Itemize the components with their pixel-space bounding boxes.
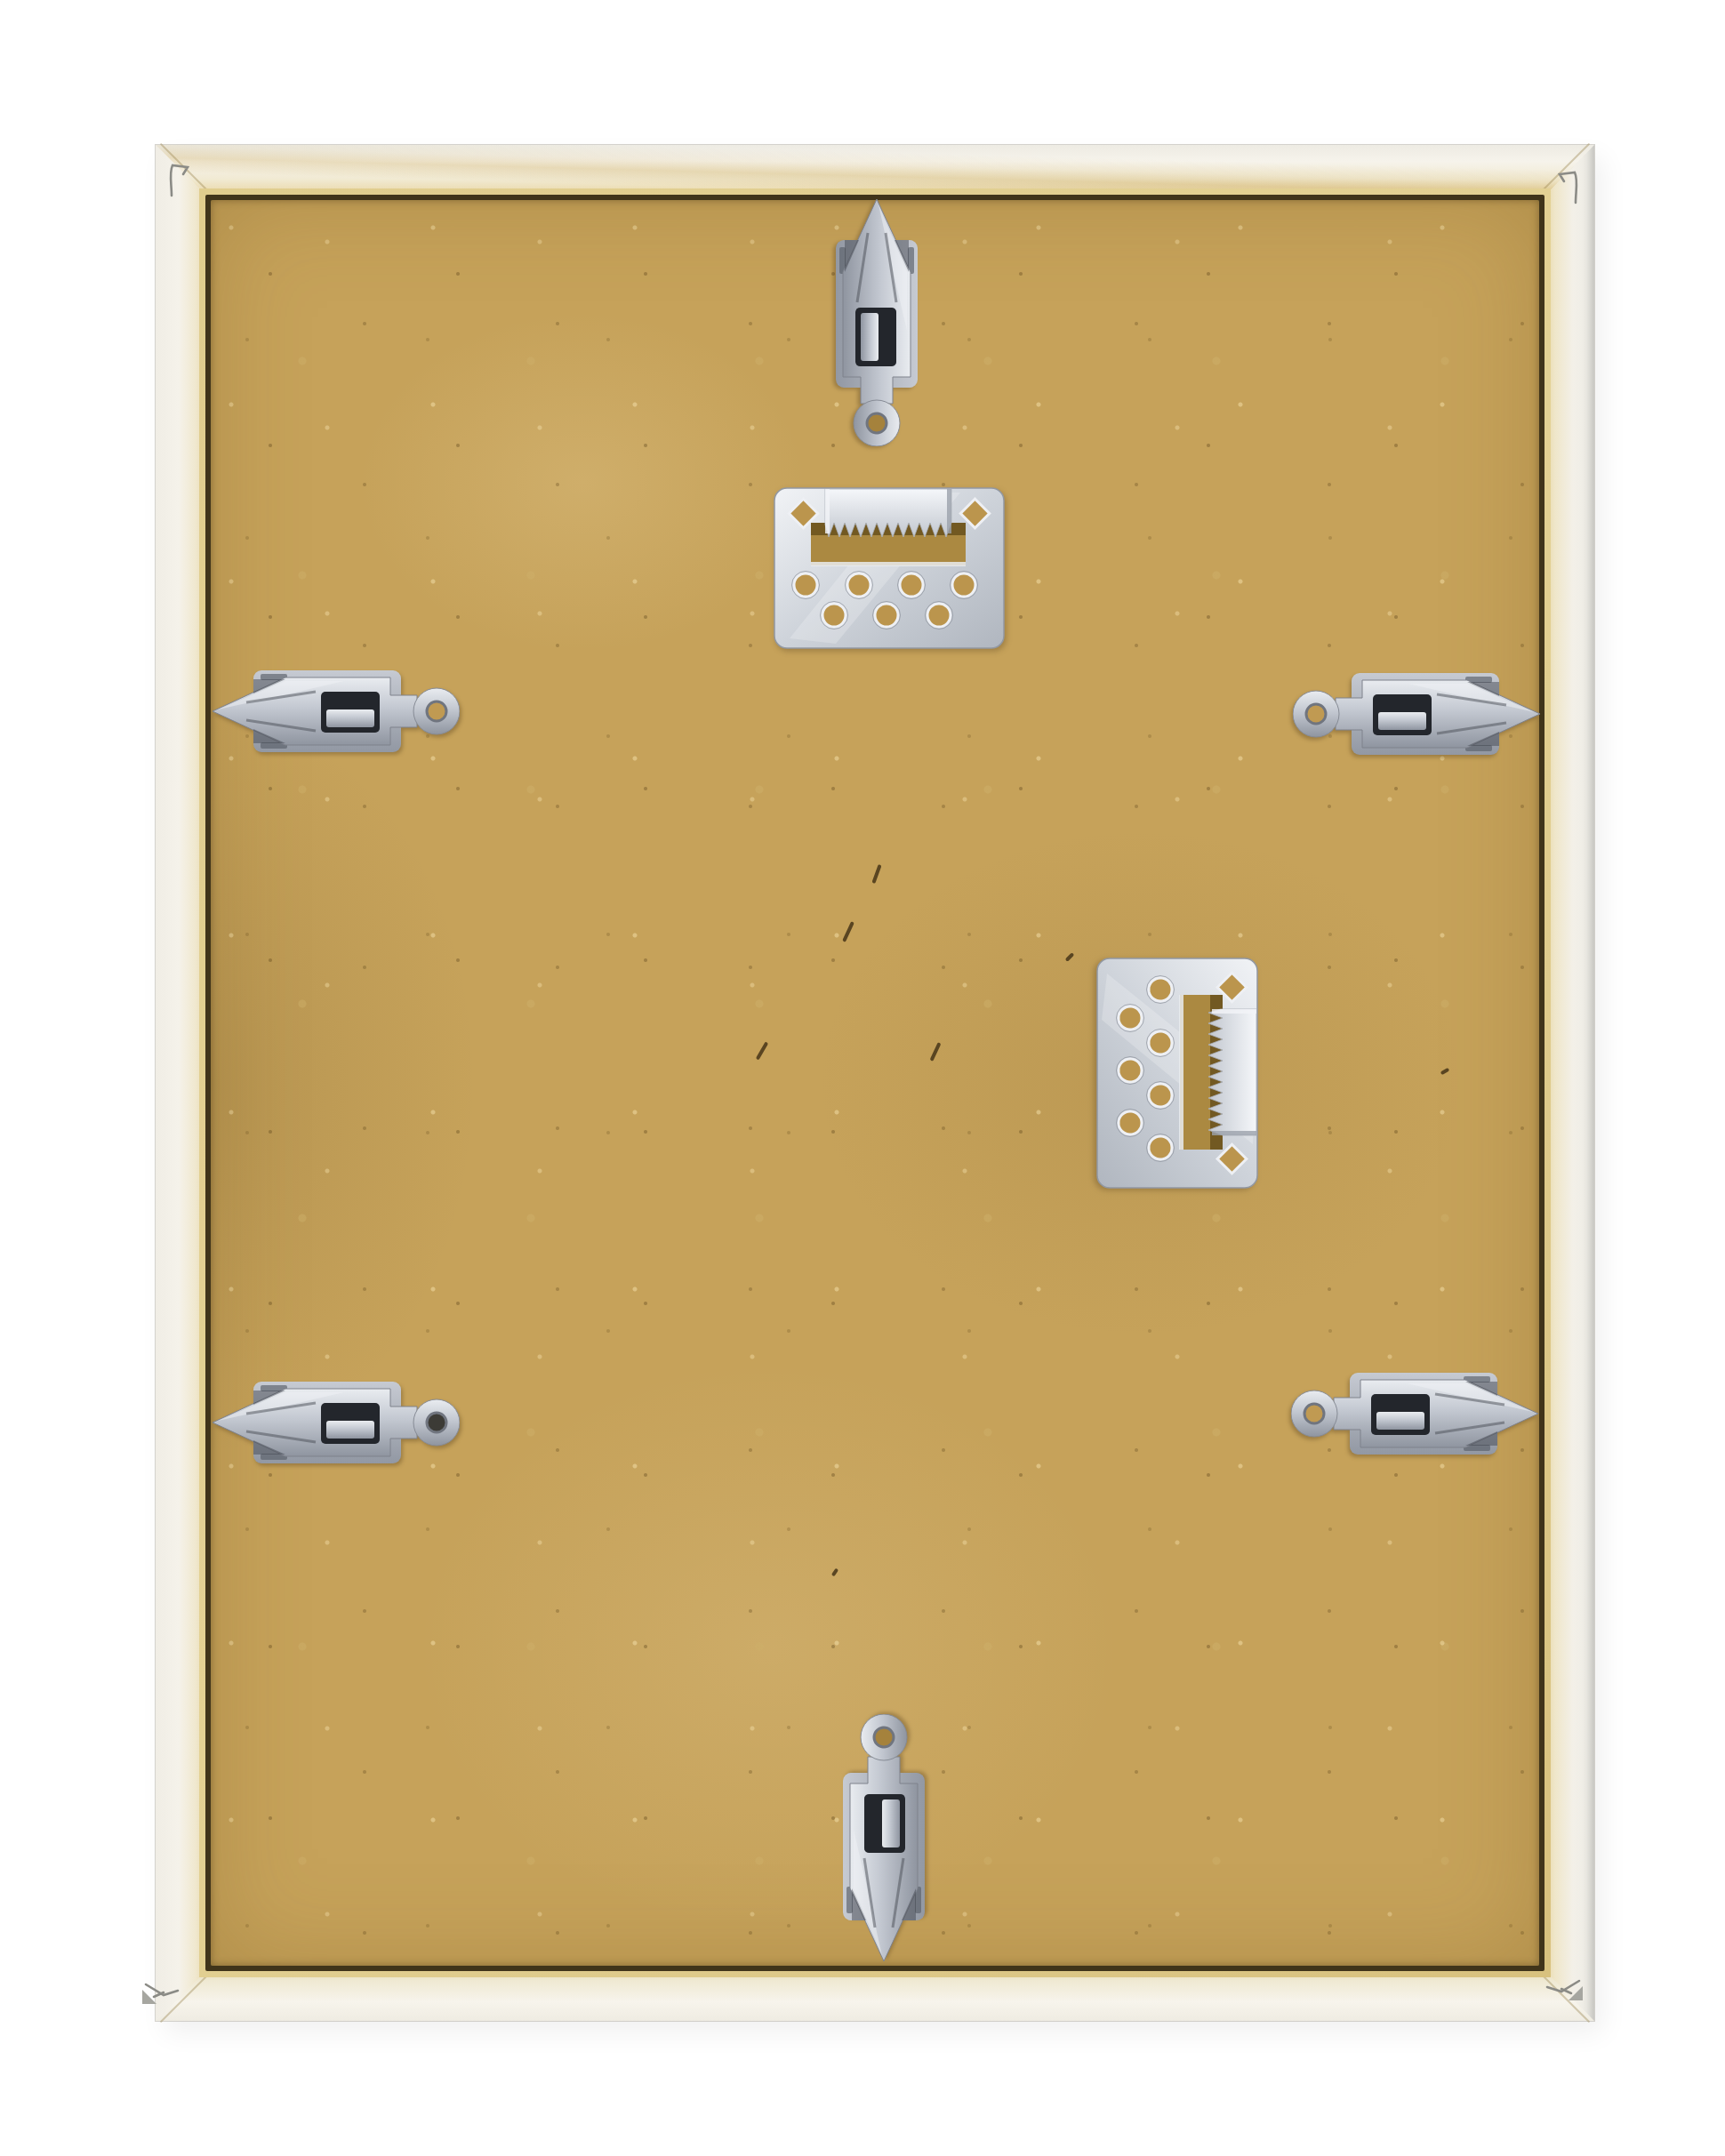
board-scratch-1 [871,864,881,884]
corner-staple-top-right [1544,164,1585,204]
board-scratch-2 [842,921,854,942]
spring-clip-right-bottom [1291,1371,1540,1456]
sawtooth-hanger-right [1096,958,1258,1189]
corner-staple-bottom-right [1544,1965,1585,2006]
spring-clip-top [834,197,919,446]
corner-staple-bottom-left [140,1968,181,2009]
board-scratch-4 [930,1042,942,1062]
board-scratch-7 [831,1567,838,1576]
hardware-layer [0,0,1725,2156]
frame-back-scene: Back of a natural pine picture frame wit… [0,0,1725,2156]
spring-clip-right-middle [1293,671,1542,757]
sawtooth-hanger-top [774,487,1005,649]
board-scratch-6 [1440,1068,1450,1075]
board-scratch-3 [756,1041,768,1060]
corner-staple-top-left [163,156,204,197]
spring-clip-left-middle [211,669,460,754]
spring-clip-bottom [841,1714,927,1963]
spring-clip-left-bottom [211,1380,460,1465]
board-scratch-5 [1065,952,1075,962]
